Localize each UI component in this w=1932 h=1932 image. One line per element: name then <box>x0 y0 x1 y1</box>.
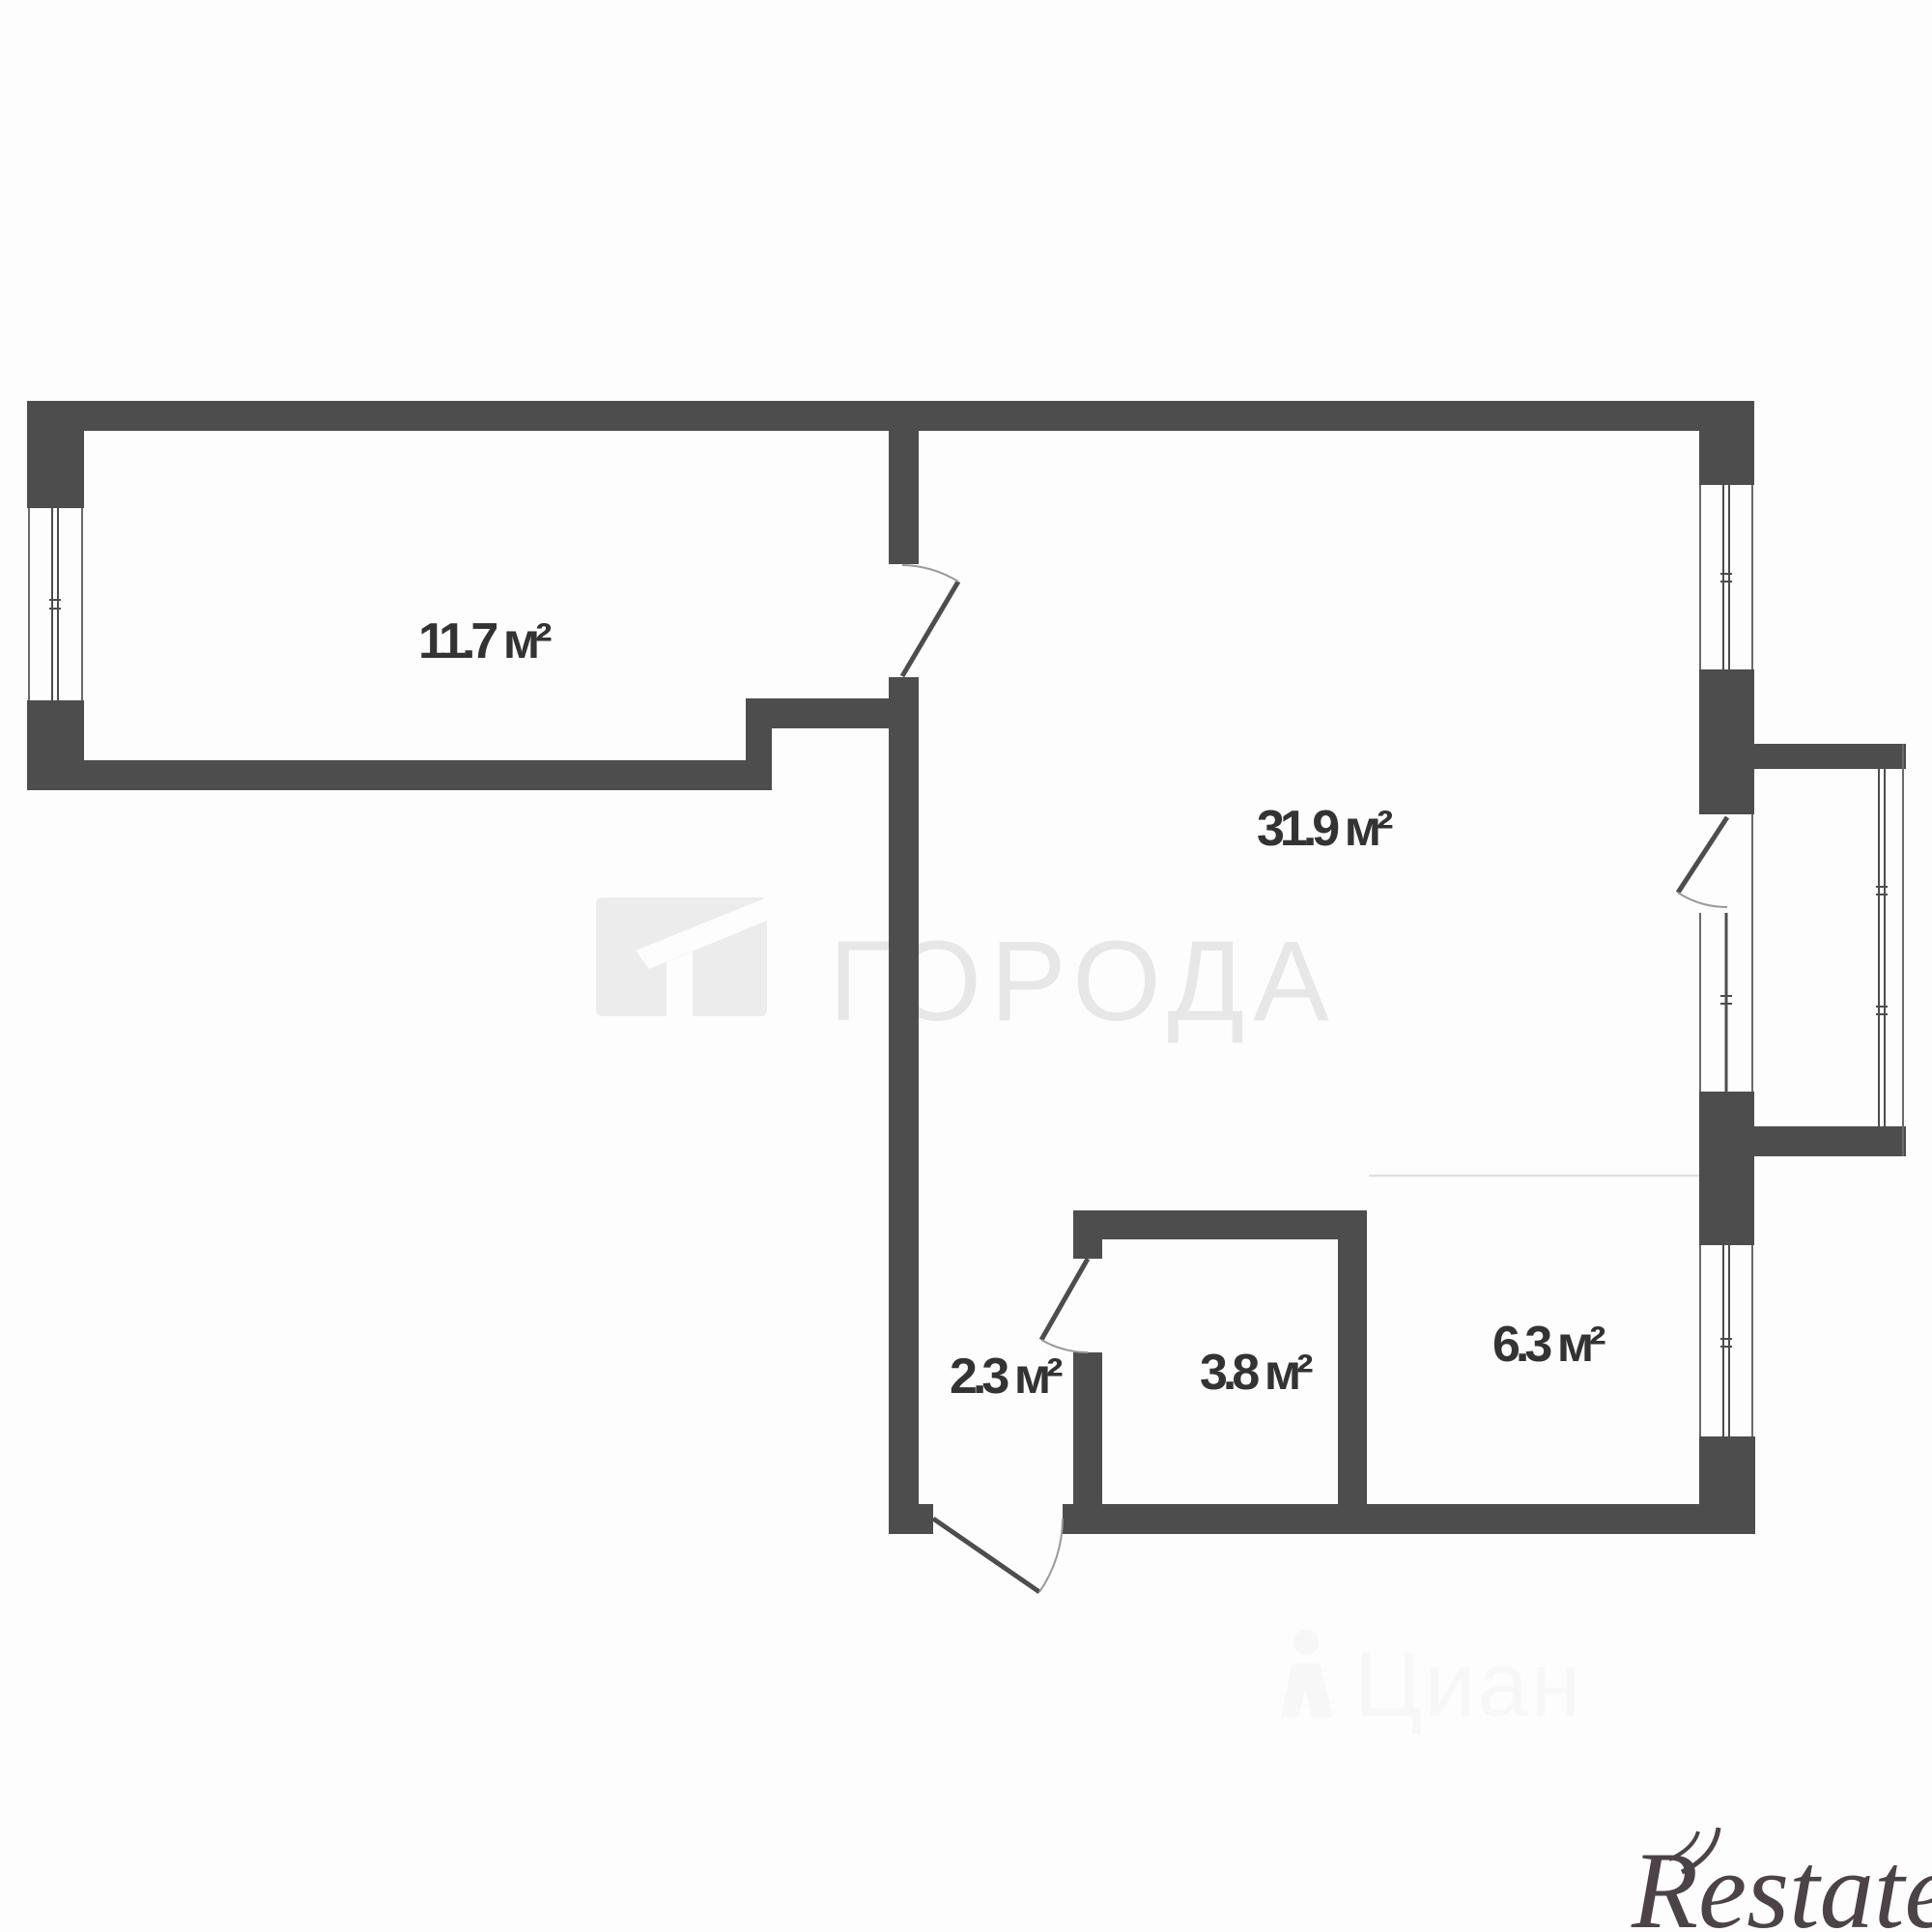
svg-text:2.3 м²: 2.3 м² <box>950 1349 1063 1405</box>
svg-text:11.7 м²: 11.7 м² <box>418 613 552 669</box>
svg-text:6.3 м²: 6.3 м² <box>1492 1317 1605 1373</box>
svg-text:31.9 м²: 31.9 м² <box>1257 801 1393 857</box>
svg-text:Циан: Циан <box>1354 1634 1583 1736</box>
svg-text:Restate: Restate <box>1631 1831 1932 1932</box>
svg-text:3.8 м²: 3.8 м² <box>1200 1345 1313 1401</box>
